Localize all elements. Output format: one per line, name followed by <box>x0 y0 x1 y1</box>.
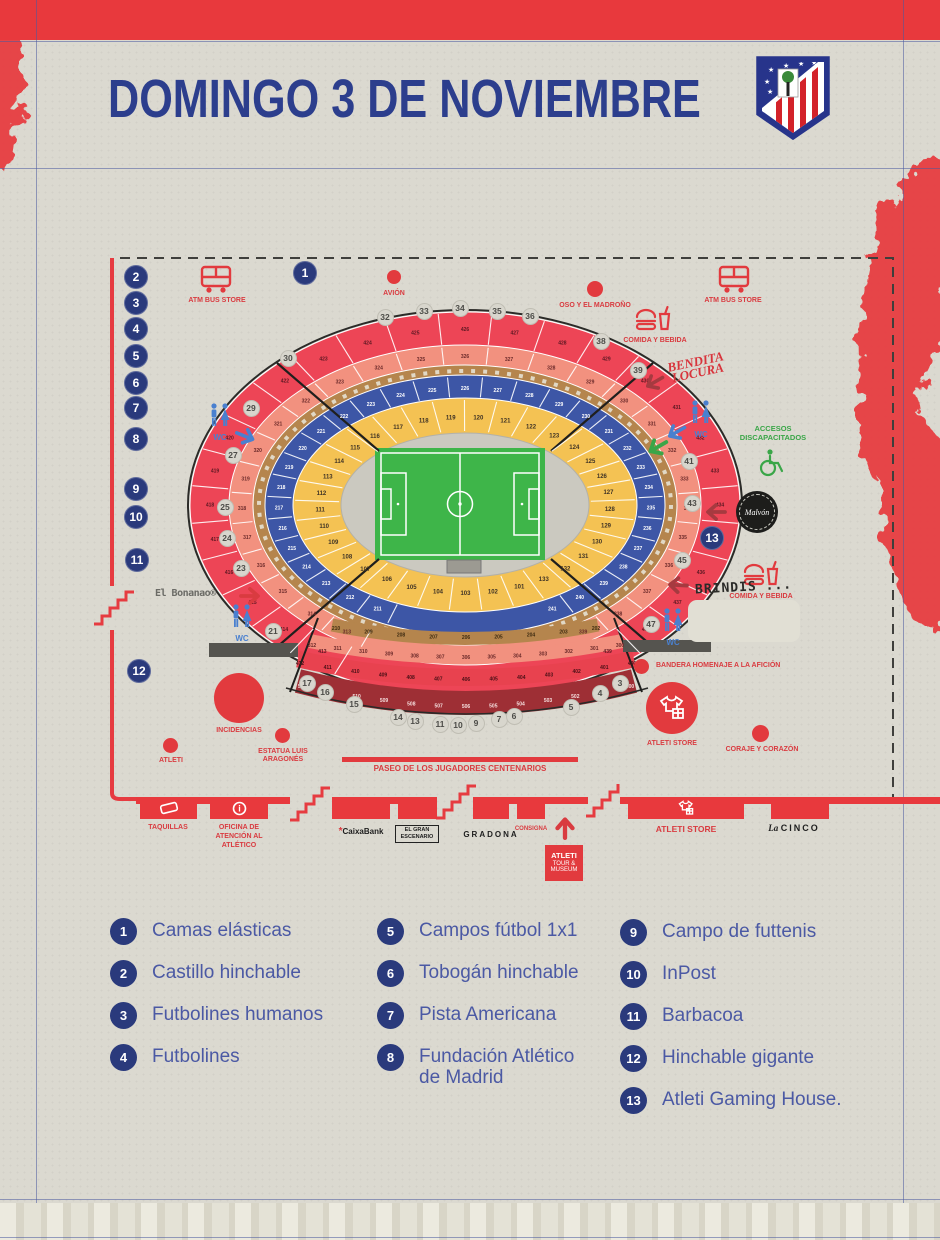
section-label: 241 <box>548 606 557 612</box>
section-label: 405 <box>489 676 498 682</box>
svg-text:★: ★ <box>770 98 776 106</box>
section-label: 426 <box>461 327 470 333</box>
section-label: 429 <box>602 357 611 363</box>
section-label: 508 <box>407 701 416 707</box>
gate-number: 14 <box>390 709 407 726</box>
section-label: 402 <box>572 669 581 675</box>
section-label: 215 <box>288 546 297 552</box>
section-label: 431 <box>673 405 682 411</box>
label-atleti-store-map: ATLETI STORE <box>647 740 697 748</box>
section-label: 326 <box>461 354 470 360</box>
section-label: 313 <box>343 629 352 635</box>
gate-number: 32 <box>377 309 394 326</box>
section-label: 306 <box>462 655 471 661</box>
svg-text:★: ★ <box>768 66 774 74</box>
legend-item: 4Futbolines <box>110 1044 323 1071</box>
label-oficina: OFICINA DE ATENCIÓN AL ATLÉTICO <box>210 824 268 850</box>
section-label: 131 <box>578 554 589 560</box>
section-label: 108 <box>342 554 353 560</box>
section-label: 404 <box>517 675 526 681</box>
frame-line-left <box>36 0 37 1240</box>
stairs-icon <box>94 592 134 624</box>
section-label: 205 <box>494 634 503 640</box>
section-label: 310 <box>359 649 368 655</box>
label-paseo: PASEO DE LOS JUGADORES CENTENARIOS <box>374 764 547 774</box>
section-label: 509 <box>380 698 389 704</box>
bottom-fringe <box>0 1203 940 1240</box>
section-label: 322 <box>302 399 311 405</box>
legend-item: 2Castillo hinchable <box>110 960 323 987</box>
section-label: 436 <box>697 570 706 576</box>
section-label: 222 <box>340 414 349 420</box>
section-label: 411 <box>324 665 332 671</box>
legend-item: 5Campos fútbol 1x1 <box>377 918 584 945</box>
section-label: 422 <box>281 378 290 384</box>
label-oso: OSO Y EL MADROÑO <box>559 302 631 310</box>
section-label: 327 <box>505 357 514 363</box>
section-label: 503 <box>544 698 553 704</box>
legend-item: 9Campo de futtenis <box>620 919 842 946</box>
tunnel-left <box>209 643 298 657</box>
section-label: 227 <box>494 388 503 394</box>
section-label: 129 <box>601 523 612 529</box>
page-title: DOMINGO 3 DE NOVIEMBRE <box>108 68 701 130</box>
section-label: 101 <box>514 585 525 591</box>
section-label: 125 <box>585 459 596 465</box>
label-comida-top: COMIDA Y BEBIDA <box>623 337 686 345</box>
section-label: 223 <box>367 402 376 408</box>
wc-bottom-left: WC <box>229 604 255 643</box>
section-label: 106 <box>382 577 393 583</box>
section-label: 119 <box>446 415 456 421</box>
section-label: 230 <box>582 414 591 420</box>
activity-area-number: 4 <box>124 317 148 341</box>
gate-number: 38 <box>593 333 610 350</box>
section-label: 122 <box>526 425 537 431</box>
activity-area-number: 9 <box>124 477 148 501</box>
section-label: 228 <box>525 393 534 399</box>
legend-item: 7Pista Americana <box>377 1002 584 1029</box>
section-label: 300 <box>616 643 625 649</box>
activity-area-number: 10 <box>124 505 148 529</box>
section-label: 339 <box>579 629 588 635</box>
section-label: 229 <box>555 402 564 408</box>
wc-icon <box>230 604 254 630</box>
section-label: 217 <box>275 505 284 511</box>
label-consigna: CONSIGNA <box>515 826 547 834</box>
activity-area-number: 11 <box>125 548 149 572</box>
section-label: 206 <box>462 635 471 641</box>
caixabank-block <box>332 797 390 819</box>
activity-area-number: 13 <box>700 526 724 550</box>
section-label: 114 <box>334 459 344 465</box>
activity-area-number: 1 <box>293 261 317 285</box>
gate-number: 41 <box>681 453 698 470</box>
estatua-marker <box>275 728 290 743</box>
frame-line-header <box>0 168 940 169</box>
legend-item: 8Fundación Atlético de Madrid <box>377 1044 584 1089</box>
section-label: 237 <box>634 546 643 552</box>
wc-icon <box>208 403 232 429</box>
section-label: 118 <box>419 419 429 425</box>
gate-number: 6 <box>506 708 523 725</box>
gate-number: 16 <box>317 684 334 701</box>
section-label: 234 <box>645 485 654 491</box>
section-label: 309 <box>385 651 394 657</box>
gradona-block <box>473 797 509 819</box>
section-label: 330 <box>620 399 629 405</box>
legend-item: 12Hinchable gigante <box>620 1045 842 1072</box>
activity-area-number: 12 <box>127 659 151 683</box>
label-atleti-store: ATLETI STORE <box>656 824 717 835</box>
section-label: 319 <box>241 476 250 482</box>
activity-area-number: 7 <box>124 396 148 420</box>
section-label: 132 <box>560 566 571 572</box>
section-label: 406 <box>462 677 471 683</box>
facility-block <box>771 797 829 819</box>
blank-patch <box>688 600 800 642</box>
section-label: 413 <box>318 649 327 655</box>
section-label: 120 <box>473 415 484 421</box>
section-label: 331 <box>648 422 657 428</box>
section-label: 112 <box>317 491 327 497</box>
section-label: 304 <box>513 653 522 659</box>
activity-area-number: 6 <box>124 371 148 395</box>
section-label: 107 <box>360 567 371 573</box>
label-estatua: ESTATUA LUIS ARAGONÉS <box>252 748 314 765</box>
consigna-block <box>517 797 545 819</box>
avion-marker <box>387 270 401 284</box>
legend-column-3: 9Campo de futtenis 10InPost 11Barbacoa 1… <box>620 919 842 1114</box>
section-label: 130 <box>592 539 603 545</box>
shirt-gift-icon <box>657 693 687 723</box>
arrow-brindis <box>662 575 691 594</box>
atleti-store-block <box>628 797 744 819</box>
section-label: 220 <box>298 446 307 452</box>
section-label: 211 <box>374 606 382 612</box>
wc-icon <box>661 608 685 634</box>
section-label: 133 <box>539 577 550 583</box>
section-label: 437 <box>673 600 682 606</box>
gate-number: 30 <box>280 350 297 367</box>
section-label: 301 <box>590 646 599 652</box>
food-drink-icon <box>634 305 672 335</box>
gate-number: 5 <box>563 699 580 716</box>
section-label: 102 <box>488 589 499 595</box>
frame-line-top <box>0 41 940 42</box>
section-label: 416 <box>225 570 234 576</box>
gate-number: 21 <box>265 623 282 640</box>
gate-number: 9 <box>468 715 485 732</box>
section-label: 401 <box>600 665 609 671</box>
section-label: 311 <box>334 646 342 652</box>
section-label: 233 <box>637 465 646 471</box>
section-label: 218 <box>277 485 286 491</box>
section-label: 126 <box>597 474 608 480</box>
label-accesos-discapacitados: ACCESOS DISCAPACITADOS <box>731 424 815 443</box>
section-label: 424 <box>363 340 372 346</box>
activity-area-number: 3 <box>124 291 148 315</box>
section-label: 226 <box>461 386 470 392</box>
gate-number: 3 <box>612 675 629 692</box>
section-label: 328 <box>547 366 556 372</box>
section-label: 418 <box>206 503 215 509</box>
el-bonanao-logo: El Bonanao® <box>155 588 216 599</box>
coraje-marker <box>752 725 769 742</box>
section-label: 238 <box>619 564 628 570</box>
gran-escenario-logo: EL GRAN ESCENARIO <box>395 825 439 843</box>
section-label: 236 <box>643 526 652 532</box>
paseo-bar <box>342 757 578 762</box>
stairs-icon <box>290 788 330 820</box>
legend-item: 6Tobogán hinchable <box>377 960 584 987</box>
section-label: 506 <box>462 704 471 710</box>
section-label: 104 <box>433 589 444 595</box>
section-label: 335 <box>679 535 688 541</box>
section-label: 419 <box>211 468 220 474</box>
section-label: 427 <box>510 330 519 336</box>
activity-area-number: 5 <box>124 344 148 368</box>
wc-icon <box>689 400 713 426</box>
section-label: 316 <box>257 563 266 569</box>
caixabank-logo: *CaixaBank <box>339 826 384 839</box>
gate-number: 34 <box>452 300 469 317</box>
section-label: 307 <box>436 655 445 661</box>
la-cinco-logo: La CINCO <box>768 823 820 834</box>
section-label: 207 <box>429 634 438 640</box>
section-label: 336 <box>665 563 674 569</box>
section-label: 324 <box>375 366 384 372</box>
section-label: 410 <box>351 669 360 675</box>
section-label: 116 <box>370 434 380 440</box>
frame-line-bottom <box>0 1199 940 1200</box>
section-label: 303 <box>539 651 548 657</box>
legend-column-2: 5Campos fútbol 1x1 6Tobogán hinchable 7P… <box>377 918 584 1089</box>
gate-number: 7 <box>491 711 508 728</box>
section-label: 103 <box>460 591 471 597</box>
gate-number: 29 <box>243 400 260 417</box>
section-label: 412 <box>296 661 305 667</box>
section-label: 204 <box>527 632 536 638</box>
legend-item: 1Camas elásticas <box>110 918 323 945</box>
section-label: 110 <box>319 524 329 530</box>
section-label: 318 <box>238 506 247 512</box>
svg-text:★: ★ <box>783 62 789 70</box>
incidencias-marker <box>214 673 264 723</box>
section-label: 203 <box>559 629 568 635</box>
gate-number: 17 <box>299 675 316 692</box>
legend-item: 10InPost <box>620 961 842 988</box>
section-label: 317 <box>243 535 252 541</box>
section-label: 333 <box>680 476 689 482</box>
section-label: 409 <box>379 672 388 678</box>
stairs-icon <box>436 786 476 818</box>
legend-item: 11Barbacoa <box>620 1003 842 1030</box>
gate-number: 15 <box>346 696 363 713</box>
gradona-logo: GRADONA <box>463 830 518 840</box>
section-label: 105 <box>407 585 418 591</box>
stairs-icon <box>586 784 618 816</box>
gate-number: 27 <box>225 447 242 464</box>
section-label: 439 <box>603 649 612 655</box>
pitch <box>375 448 545 573</box>
gate-number: 39 <box>630 362 647 379</box>
section-label: 425 <box>411 330 420 336</box>
shirt-icon <box>677 799 695 817</box>
label-coraje: CORAJE Y CORAZÓN <box>726 746 799 754</box>
gate-number: 33 <box>416 303 433 320</box>
section-label: 423 <box>319 357 328 363</box>
legend-item: 3Futbolines humanos <box>110 1002 323 1029</box>
label-atm-bus-store-right: ATM BUS STORE <box>704 297 761 305</box>
section-label: 232 <box>623 446 632 452</box>
atleti-tour-museum-box: ATLETI TOUR & MUSEUM <box>545 845 583 881</box>
gate-number: 45 <box>674 552 691 569</box>
section-label: 117 <box>393 425 403 431</box>
section-label: 115 <box>350 446 360 452</box>
label-incidencias: INCIDENCIAS <box>216 727 262 735</box>
label-atm-bus-store-left: ATM BUS STORE <box>188 297 245 305</box>
section-label: 504 <box>516 701 525 707</box>
gate-number: 23 <box>233 560 250 577</box>
section-label: 337 <box>643 589 652 595</box>
section-label: 202 <box>592 626 601 632</box>
gate-number: 10 <box>450 717 467 734</box>
oficina-block: i <box>210 797 268 819</box>
legend-column-1: 1Camas elásticas 2Castillo hinchable 3Fu… <box>110 918 323 1071</box>
section-label: 123 <box>549 434 560 440</box>
taquillas-block <box>140 797 197 819</box>
atletico-crest: ★★★ ★★★★ <box>756 56 830 140</box>
bus-icon <box>199 264 233 294</box>
section-label: 111 <box>316 507 326 513</box>
svg-text:★: ★ <box>764 78 770 86</box>
bandera-marker <box>634 659 649 674</box>
section-label: 113 <box>323 474 333 480</box>
section-label: 216 <box>278 526 287 532</box>
section-label: 403 <box>545 672 554 678</box>
section-label: 407 <box>434 676 443 682</box>
label-bandera: BANDERA HOMENAJE A LA AFICIÓN <box>656 662 780 670</box>
atleti-marker <box>163 738 178 753</box>
gate-number: 35 <box>489 303 506 320</box>
section-label: 312 <box>308 643 317 649</box>
section-label: 121 <box>500 418 511 424</box>
atleti-store-marker <box>646 682 698 734</box>
section-label: 338 <box>614 611 623 617</box>
arrow-tour-museum <box>551 812 579 840</box>
malvon-badge: Malvón <box>736 491 778 533</box>
section-label: 505 <box>489 703 498 709</box>
label-taquillas: TAQUILLAS <box>148 824 188 833</box>
svg-text:★: ★ <box>767 88 773 96</box>
gate-number: 25 <box>217 499 234 516</box>
ticket-icon <box>158 800 180 816</box>
label-atleti: ATLETI <box>159 757 183 765</box>
section-label: 225 <box>428 388 437 394</box>
arrow-malvon <box>700 503 728 521</box>
event-poster: 1011021031041051061071081091101111121131… <box>0 0 940 1240</box>
gate-number: 11 <box>432 716 449 733</box>
section-label: 213 <box>322 581 331 587</box>
section-label: 235 <box>647 505 656 511</box>
section-label: 433 <box>711 468 720 474</box>
section-label: 302 <box>564 649 573 655</box>
section-label: 124 <box>569 445 580 451</box>
gran-escenario-block <box>398 797 437 819</box>
section-label: 128 <box>605 507 616 513</box>
activity-area-number: 8 <box>124 427 148 451</box>
section-label: 231 <box>605 429 614 435</box>
arrow-bonanao <box>238 587 266 605</box>
section-label: 315 <box>279 589 288 595</box>
section-label: 314 <box>308 611 317 617</box>
section-label: 417 <box>211 537 220 543</box>
section-label: 212 <box>346 595 355 601</box>
activity-area-number: 2 <box>124 265 148 289</box>
wc-top-right: WC <box>688 400 714 439</box>
wc-bottom-right: WC <box>660 608 686 647</box>
frame-line-right <box>903 0 904 1240</box>
section-label: 305 <box>487 655 496 661</box>
section-label: 507 <box>434 703 443 709</box>
section-label: 109 <box>328 540 339 546</box>
section-label: 428 <box>558 340 567 346</box>
gate-number: 13 <box>407 713 424 730</box>
section-label: 239 <box>600 581 609 587</box>
wheelchair-icon <box>756 448 786 478</box>
gate-number: 43 <box>684 495 701 512</box>
section-label: 325 <box>417 357 426 363</box>
gate-number: 47 <box>643 616 660 633</box>
wc-top-left: WC <box>207 403 233 442</box>
section-label: 321 <box>274 422 283 428</box>
legend-item: 13Atleti Gaming House. <box>620 1087 842 1114</box>
frame-line-bottom2 <box>0 1237 940 1238</box>
info-icon: i <box>232 801 247 816</box>
section-label: 323 <box>336 380 345 386</box>
section-label: 221 <box>317 429 326 435</box>
section-label: 329 <box>586 380 595 386</box>
gate-number: 24 <box>219 530 236 547</box>
section-label: 127 <box>603 490 614 496</box>
section-label: 208 <box>397 632 406 638</box>
gate-number: 36 <box>522 308 539 325</box>
section-label: 224 <box>396 393 405 399</box>
section-label: 308 <box>410 653 419 659</box>
oso-marker <box>587 281 603 297</box>
section-label: 408 <box>406 675 415 681</box>
top-red-bar <box>0 0 940 40</box>
gate-number: 4 <box>592 685 609 702</box>
section-label: 219 <box>285 465 294 471</box>
section-label: 209 <box>364 629 373 635</box>
bus-icon <box>717 264 751 294</box>
label-avion: AVIÓN <box>383 290 405 298</box>
section-label: 240 <box>576 595 585 601</box>
section-label: 210 <box>332 626 341 632</box>
svg-text:i: i <box>238 803 241 813</box>
section-label: 214 <box>302 564 311 570</box>
